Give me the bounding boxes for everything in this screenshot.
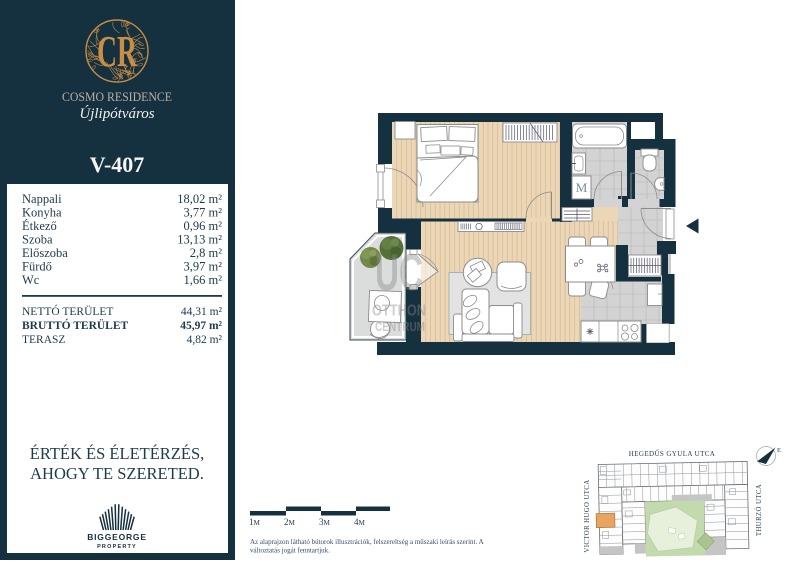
svg-text:M: M bbox=[576, 180, 588, 195]
svg-text:E: E bbox=[777, 447, 781, 454]
svg-text:3,77 m²: 3,77 m² bbox=[184, 206, 223, 220]
svg-text:Étkező: Étkező bbox=[22, 219, 57, 233]
svg-text:NETTÓ TERÜLET: NETTÓ TERÜLET bbox=[22, 304, 113, 318]
svg-text:13,13 m²: 13,13 m² bbox=[177, 233, 222, 247]
svg-text:3,97 m²: 3,97 m² bbox=[184, 260, 223, 274]
svg-text:UC: UC bbox=[375, 244, 423, 302]
svg-text:BIGGEORGE: BIGGEORGE bbox=[87, 532, 147, 542]
svg-text:0,96 m²: 0,96 m² bbox=[184, 219, 223, 233]
svg-text:CENTRUM: CENTRUM bbox=[375, 319, 425, 334]
svg-text:1,66 m²: 1,66 m² bbox=[184, 273, 223, 287]
svg-text:AHOGY TE SZERETED.: AHOGY TE SZERETED. bbox=[30, 464, 204, 483]
svg-text:HEGEDŰS GYULA UTCA: HEGEDŰS GYULA UTCA bbox=[629, 450, 716, 458]
svg-text:BRUTTÓ TERÜLET: BRUTTÓ TERÜLET bbox=[22, 318, 129, 332]
svg-text:4M: 4M bbox=[354, 517, 366, 527]
svg-text:CR: CR bbox=[97, 27, 138, 76]
svg-text:18,02 m²: 18,02 m² bbox=[177, 192, 222, 206]
svg-text:OTTHON: OTTHON bbox=[372, 303, 426, 320]
svg-text:44,31 m²: 44,31 m² bbox=[181, 306, 223, 318]
svg-text:V-407: V-407 bbox=[90, 152, 145, 177]
svg-text:PROPERTY: PROPERTY bbox=[97, 544, 137, 550]
svg-text:4,82 m²: 4,82 m² bbox=[187, 334, 223, 346]
svg-text:1M: 1M bbox=[249, 517, 261, 527]
svg-text:2,8 m²: 2,8 m² bbox=[190, 246, 222, 260]
svg-text:Szoba: Szoba bbox=[22, 233, 53, 247]
svg-text:Nappali: Nappali bbox=[22, 192, 62, 206]
svg-text:változtatás jogát fenntartjuk.: változtatás jogát fenntartjuk. bbox=[250, 547, 330, 555]
svg-text:Előszoba: Előszoba bbox=[22, 246, 68, 260]
svg-text:COSMO RESIDENCE: COSMO RESIDENCE bbox=[62, 90, 172, 104]
svg-text:Az alaprajzon látható bútorok: Az alaprajzon látható bútorok illusztrác… bbox=[250, 538, 484, 546]
svg-text:ÉRTÉK ÉS ÉLETÉRZÉS,: ÉRTÉK ÉS ÉLETÉRZÉS, bbox=[30, 444, 205, 463]
svg-text:3M: 3M bbox=[319, 517, 331, 527]
svg-text:2M: 2M bbox=[284, 517, 296, 527]
svg-text:Wc: Wc bbox=[22, 273, 40, 287]
svg-text:VICTOR HUGO UTCA: VICTOR HUGO UTCA bbox=[584, 479, 591, 552]
svg-text:Konyha: Konyha bbox=[22, 206, 62, 220]
svg-text:Fürdő: Fürdő bbox=[22, 260, 52, 274]
svg-text:45,97 m²: 45,97 m² bbox=[180, 320, 222, 332]
svg-text:Újlipótváros: Újlipótváros bbox=[79, 105, 154, 122]
svg-text:THURZÓ UTCA: THURZÓ UTCA bbox=[755, 484, 763, 536]
svg-text:TERASZ: TERASZ bbox=[22, 334, 65, 346]
